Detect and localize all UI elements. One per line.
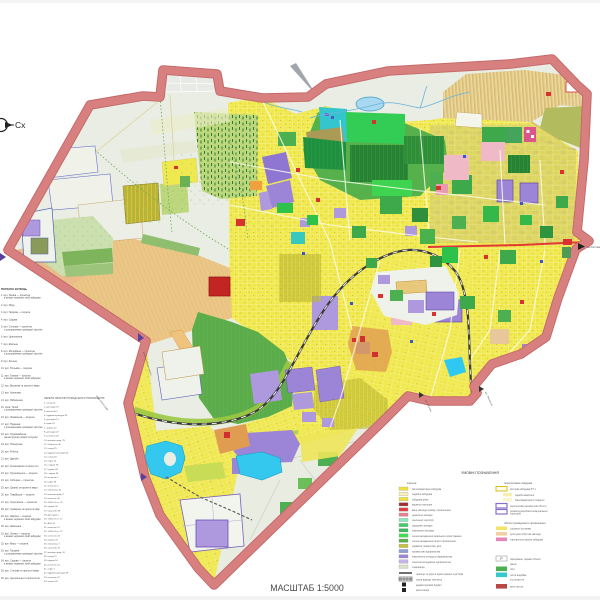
svg-text:32. ЗОШ І-ІІІ ст. 12: 32. ЗОШ І-ІІІ ст. 12 [44, 531, 63, 533]
svg-text:3. школа № 5: 3. школа № 5 [44, 410, 58, 413]
svg-text:територій: територій [510, 513, 521, 516]
svg-text:кладовища: кладовища [412, 566, 425, 569]
svg-text:МАСШТАБ 1:5000: МАСШТАБ 1:5000 [270, 583, 344, 593]
svg-text:в межах червоних ліній забудов: в межах червоних ліній забудови [4, 562, 41, 565]
svg-text:42. будинок культури 39: 42. будинок культури 39 [44, 573, 69, 575]
svg-text:реконструкція покриття вулиці: реконструкція покриття вулиці [4, 436, 38, 439]
svg-text:30. вул. Шевченка: 30. вул. Шевченка [1, 525, 22, 528]
svg-text:на Ростовель: на Ростовель [587, 245, 600, 249]
svg-text:12. вул. Вишнева та прилеглі к: 12. вул. Вишнева та прилеглі кварт [1, 384, 41, 387]
svg-text:автостанція: автостанція [416, 589, 430, 592]
svg-text:торговельно-офісна забудова: торговельно-офісна забудова [510, 539, 544, 542]
svg-text:39. церква 16: 39. церква 16 [44, 560, 58, 562]
svg-text:перспективна забудова: перспективна забудова [504, 481, 533, 485]
svg-text:10. магазин прод. 25: 10. магазин прод. 25 [44, 440, 66, 442]
svg-text:27. школа № 38: 27. школа № 38 [44, 509, 61, 512]
svg-text:30. АЗС 20: 30. АЗС 20 [44, 522, 56, 525]
svg-text:21. котельня 2: 21. котельня 2 [44, 486, 59, 488]
svg-text:34. церква 20: 34. церква 20 [44, 539, 58, 541]
svg-text:культурно-побутові заклади: культурно-побутові заклади [510, 533, 541, 536]
svg-text:багатоквартирні 2 поверхи: багатоквартирні 2 поверхи [515, 499, 545, 502]
svg-text:перспективні промислові об'єкт: перспективні промислові об'єкти [510, 505, 547, 508]
svg-text:ПЕРЕЛІК ОБ'ЄКТІВ ГРОМАДСЬКОГО: ПЕРЕЛІК ОБ'ЄКТІВ ГРОМАДСЬКОГО ПРИЗНАЧЕНН… [44, 397, 105, 400]
svg-text:38. склад 15: 38. склад 15 [44, 556, 57, 558]
svg-text:в межах червоних ліній забудов: в межах червоних ліній забудови [4, 297, 41, 300]
svg-text:16. вул. Лиманська — існуюча: 16. вул. Лиманська — існуюча [1, 416, 35, 419]
svg-text:7. церква 10: 7. церква 10 [44, 427, 57, 429]
svg-text:35. бібліотека 7: 35. бібліотека 7 [44, 543, 60, 546]
svg-text:24. котельня 30: 24. котельня 30 [44, 498, 61, 500]
svg-text:5. дитсадок 13: 5. дитсадок 13 [44, 419, 59, 421]
svg-text:з розширенням проїжджої частин: з розширенням проїжджої частини [4, 328, 43, 331]
svg-text:22. вул. Космонавтів та прилег: 22. вул. Космонавтів та прилеглі к [1, 465, 40, 468]
svg-text:40. котельня 12: 40. котельня 12 [44, 564, 61, 566]
svg-text:29. ЗОШ І-ІІІ ст. 17: 29. ЗОШ І-ІІІ ст. 17 [44, 519, 63, 521]
svg-text:р-д покриття: р-д покриття [510, 579, 525, 582]
svg-text:9. котельня 24: 9. котельня 24 [44, 436, 59, 438]
svg-text:13. будинок культури 40: 13. будинок культури 40 [44, 452, 69, 454]
svg-text:озеленені території: озеленені території [412, 519, 434, 522]
svg-text:41. кафе 7: 41. кафе 7 [44, 568, 55, 571]
svg-text:8. дитсадок 22: 8. дитсадок 22 [44, 432, 59, 434]
svg-text:Сх: Сх [15, 120, 26, 130]
svg-text:чиста водойма: чиста водойма [510, 574, 527, 577]
svg-text:20. кафе 38: 20. кафе 38 [44, 480, 57, 483]
svg-text:25. вул. Quartal та прилеглі к: 25. вул. Quartal та прилеглі кварт [1, 486, 39, 489]
svg-text:6. кафе 19: 6. кафе 19 [44, 422, 55, 425]
svg-text:3. вул. Гагаріна — існуюча: 3. вул. Гагаріна — існуюча [1, 311, 31, 314]
svg-text:31. котельня 12: 31. котельня 12 [44, 527, 61, 529]
svg-text:в межах червоних ліній забудов: в межах червоних ліній забудови [4, 377, 41, 380]
svg-text:27. вул. Херсонська — проектна: 27. вул. Херсонська — проектна [1, 501, 38, 504]
svg-text:35. вул. Степова та прилеглі к: 35. вул. Степова та прилеглі кварт [1, 570, 40, 573]
svg-text:оздоровчі заклади: оздоровчі заклади [412, 524, 433, 527]
svg-text:садибні квартали: садибні квартали [515, 494, 535, 497]
svg-text:1. склад 16: 1. склад 16 [44, 403, 56, 405]
svg-text:32. вул. Миру — існуюча: 32. вул. Миру — існуюча [1, 542, 29, 545]
svg-text:авто частка: авто частка [510, 586, 524, 589]
svg-text:об'єкти громадського призначен: об'єкти громадського призначення [504, 521, 546, 525]
svg-text:забудова різна: забудова різна [412, 498, 429, 501]
svg-text:43. котельня 22: 43. котельня 22 [44, 577, 61, 579]
svg-text:26. церква 32: 26. церква 32 [44, 506, 58, 508]
svg-text:ліси: ліси [510, 568, 515, 571]
svg-text:6. вул. Центральна: 6. вул. Центральна [1, 336, 23, 339]
svg-text:вищі заклади громад. призначен: вищі заклади громад. призначення [412, 509, 451, 512]
svg-text:24. вул. Соборна — проектна: 24. вул. Соборна — проектна [1, 479, 34, 482]
svg-text:19. котельня 1: 19. котельня 1 [44, 477, 59, 479]
svg-text:25. ЗОШ І-ІІІ ст. 23: 25. ЗОШ І-ІІІ ст. 23 [44, 502, 63, 504]
svg-text:житлова забудова 5/7 п.: житлова забудова 5/7 п. [510, 488, 537, 491]
svg-text:паркування, гаражні об'єкти: паркування, гаражні об'єкти [510, 558, 542, 561]
svg-text:комунальні заклади: комунальні заклади [412, 530, 435, 533]
svg-text:10. вул. Польова — існуюча: 10. вул. Польова — існуюча [1, 367, 33, 370]
svg-text:границя та дороги користування: границя та дороги користування територія [416, 573, 464, 576]
svg-text:36. вул. Центральна та прилегл: 36. вул. Центральна та прилеглі кв [1, 577, 40, 580]
svg-text:соціальні установи: соціальні установи [510, 528, 532, 531]
svg-text:9. вул. Зелена: 9. вул. Зелена [1, 360, 17, 363]
svg-text:15. кафе 16: 15. кафе 16 [44, 460, 57, 463]
svg-text:садибна забудова: садибна забудова [412, 493, 433, 496]
svg-text:23. вул. Грушевського — існуюч: 23. вул. Грушевського — існуюча [1, 472, 38, 475]
svg-text:адміністративні будівлі: адміністративні будівлі [416, 584, 442, 587]
svg-text:23. магазин прод. 4: 23. магазин прод. 4 [44, 494, 64, 496]
svg-text:відомча територія: відомча територія [412, 504, 433, 507]
svg-text:17. церква 34: 17. церква 34 [44, 469, 58, 471]
svg-text:2. дитсадок 20: 2. дитсадок 20 [44, 407, 59, 409]
svg-text:14. склад 18: 14. склад 18 [44, 456, 57, 458]
svg-text:ринок: ринок [510, 563, 517, 566]
svg-text:комунально-складські підприємс: комунально-складські підприємства [412, 556, 453, 559]
svg-text:13. вул. Калинова: 13. вул. Калинова [1, 392, 21, 395]
svg-text:зелені насадження загального к: зелені насадження загального користуванн… [412, 535, 462, 538]
svg-text:26. вул. Таврійська — існуюча: 26. вул. Таврійська — існуюча [1, 494, 35, 497]
svg-text:19. вул. Піонерська: 19. вул. Піонерська [1, 443, 23, 446]
svg-text:11. бібліотека 30: 11. бібліотека 30 [44, 443, 62, 446]
svg-text:багатоквартирна забудова: багатоквартирна забудова [412, 488, 442, 491]
svg-text:дошкільні заклади: дошкільні заклади [412, 514, 433, 517]
svg-text:з розширенням проїжджої частин: з розширенням проїжджої частини [4, 409, 43, 412]
svg-text:33. котельня 24: 33. котельня 24 [44, 535, 61, 537]
svg-text:з розширенням проїжджої частин: з розширенням проїжджої частини [4, 426, 43, 429]
svg-text:28. вул. Чумацька та прилеглі: 28. вул. Чумацька та прилеглі квар [1, 508, 40, 511]
svg-text:зелені насадження іншого призн: зелені насадження іншого призначення [412, 540, 456, 543]
svg-text:7. вул. Шкільна: 7. вул. Шкільна [1, 343, 18, 346]
svg-text:22. бібліотека 40: 22. бібліотека 40 [44, 489, 62, 492]
svg-text:4. вул. Садова: 4. вул. Садова [1, 318, 18, 321]
svg-text:20. вул. Робоча: 20. вул. Робоча [1, 450, 19, 453]
svg-text:21. вул. Дружби: 21. вул. Дружби [1, 458, 19, 461]
svg-text:промислові підприємства: промислові підприємства [412, 550, 441, 553]
svg-text:з розширенням проїжджої частин: з розширенням проїжджої частини [4, 353, 43, 356]
svg-text:36. школа № 37: 36. школа № 37 [44, 547, 61, 550]
svg-text:ПЕРЕЛІК ВУЛИЦЬ: ПЕРЕЛІК ВУЛИЦЬ [1, 287, 28, 291]
svg-text:садівничі товариства, дачі: садівничі товариства, дачі [412, 545, 442, 548]
svg-text:12. склад 25: 12. склад 25 [44, 448, 57, 450]
svg-text:в межах червоних ліній забудов: в межах червоних ліній забудови [4, 518, 41, 521]
svg-text:сільськогосподарські підприємс: сільськогосподарські підприємства [412, 561, 451, 564]
svg-text:в межах червоних ліній забудов: в межах червоних ліній забудови [4, 535, 41, 538]
svg-text:44. аптека 29: 44. аптека 29 [44, 581, 58, 583]
svg-text:існуюча: існуюча [407, 481, 417, 485]
svg-text:14. вул. Набережна: 14. вул. Набережна [1, 399, 23, 402]
svg-text:28. дитсадок 2: 28. дитсадок 2 [44, 515, 59, 517]
svg-text:УМОВНІ ПОЗНАЧЕННЯ: УМОВНІ ПОЗНАЧЕННЯ [461, 471, 499, 475]
svg-text:37. магазин прод. 20: 37. магазин прод. 20 [44, 552, 66, 554]
svg-text:2. вул. Миру: 2. вул. Миру [1, 304, 15, 307]
svg-text:з розширенням проїжджої частин: з розширенням проїжджої частини [4, 552, 43, 555]
svg-text:4. будинок культури 39: 4. будинок культури 39 [44, 415, 68, 417]
svg-text:смуга відводу залізниці: смуга відводу залізниці [416, 579, 442, 582]
svg-text:16. стадіон 28: 16. стадіон 28 [44, 464, 59, 467]
svg-text:18. стадіон 36: 18. стадіон 36 [44, 472, 59, 475]
